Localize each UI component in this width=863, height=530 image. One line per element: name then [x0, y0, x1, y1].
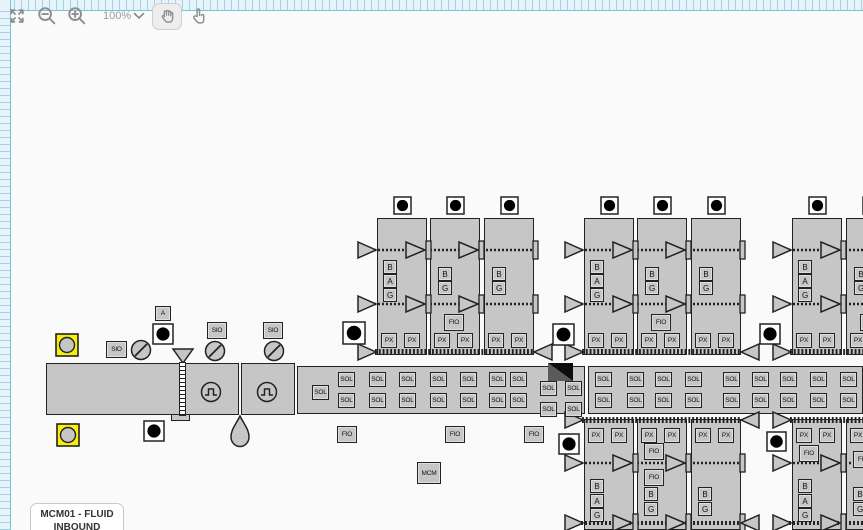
dashed-connector: [179, 362, 186, 416]
sol-box[interactable]: SOL: [510, 393, 527, 408]
pipe-flange: [426, 295, 431, 313]
sol-box[interactable]: SOL: [338, 393, 355, 408]
px-box[interactable]: PX: [588, 428, 604, 443]
valve-arrow-icon[interactable]: [773, 344, 791, 360]
pipe-flange: [479, 241, 484, 259]
sol-box[interactable]: SOL: [565, 381, 582, 396]
valve-arrow-icon[interactable]: [613, 515, 632, 530]
pipe-flange: [841, 295, 846, 313]
zoom-in-button[interactable]: [67, 6, 87, 26]
px-box[interactable]: PX: [434, 333, 450, 348]
letter-box-b[interactable]: B: [854, 267, 863, 281]
letter-box-b[interactable]: B: [798, 479, 812, 493]
valve-arrow-icon[interactable]: [613, 455, 632, 471]
pipe-flange: [686, 514, 691, 530]
valve-arrow-icon[interactable]: [821, 296, 840, 312]
valve-arrow-icon[interactable]: [459, 296, 478, 312]
pipe-flange: [633, 241, 638, 259]
px-box[interactable]: PX: [488, 333, 504, 348]
black-circle-indicator: [657, 200, 668, 211]
px-box[interactable]: PX: [695, 428, 711, 443]
sol-box[interactable]: SOL: [627, 372, 644, 387]
sol-box[interactable]: SOL: [840, 372, 857, 387]
sol-box[interactable]: SOL: [627, 393, 644, 408]
pipe-flange: [841, 514, 846, 530]
valve-arrow-icon[interactable]: [741, 412, 759, 428]
black-circle-indicator: [347, 326, 362, 341]
px-box[interactable]: PX: [641, 333, 657, 348]
magnifier-plus-icon: [67, 6, 87, 26]
sol-box[interactable]: SOL: [595, 372, 612, 387]
letter-box-b[interactable]: B: [853, 487, 863, 501]
pipe-flange: [633, 454, 638, 472]
sol-box[interactable]: SOL: [595, 393, 612, 408]
valve-arrow-icon[interactable]: [173, 349, 193, 363]
valve-arrow-icon[interactable]: [773, 296, 791, 312]
letter-box-a[interactable]: A: [798, 274, 812, 288]
sio-box[interactable]: SIO: [207, 322, 227, 339]
sol-box[interactable]: SOL: [685, 372, 702, 387]
letter-box-b[interactable]: B: [699, 267, 713, 281]
valve-arrow-icon[interactable]: [666, 515, 685, 530]
sol-box[interactable]: SOL: [489, 393, 506, 408]
fio-box[interactable]: FIO: [644, 469, 664, 486]
px-box[interactable]: PX: [664, 428, 680, 443]
px-box[interactable]: PX: [819, 428, 835, 443]
pipe-flange: [426, 241, 431, 259]
valve-arrow-icon[interactable]: [358, 242, 376, 258]
sol-box[interactable]: SOL: [338, 372, 355, 387]
px-box[interactable]: PX: [796, 333, 812, 348]
letter-box-a[interactable]: A: [798, 494, 812, 508]
fio-box[interactable]: FIO: [799, 445, 819, 462]
sio-box[interactable]: SIO: [263, 322, 283, 339]
letter-box-g[interactable]: G: [645, 281, 659, 295]
letter-box-g[interactable]: G: [590, 508, 604, 522]
px-box[interactable]: PX: [457, 333, 473, 348]
pointer-finger-icon: [189, 6, 206, 26]
black-circle-indicator: [711, 200, 722, 211]
sol-box[interactable]: SOL: [540, 402, 557, 417]
gray-circle: [61, 428, 76, 443]
sol-box[interactable]: SOL: [460, 372, 477, 387]
pipe-flange: [841, 454, 846, 472]
pipe-flange: [740, 241, 745, 259]
px-box[interactable]: PX: [511, 333, 527, 348]
px-box[interactable]: PX: [664, 333, 680, 348]
px-box[interactable]: PX: [381, 333, 397, 348]
px-box[interactable]: PX: [588, 333, 604, 348]
letter-box-b[interactable]: B: [590, 260, 604, 274]
magnifier-minus-icon: [37, 6, 57, 26]
sio-box[interactable]: SIO: [106, 341, 127, 358]
pipe-flange: [740, 454, 745, 472]
letter-box-g[interactable]: G: [383, 288, 397, 302]
px-box[interactable]: PX: [641, 428, 657, 443]
valve-arrow-icon[interactable]: [565, 296, 583, 312]
expand-arrows-icon: [8, 7, 26, 25]
sol-box[interactable]: SOL: [655, 393, 672, 408]
letter-box-g[interactable]: G: [853, 502, 863, 516]
sol-box[interactable]: SOL: [840, 393, 857, 408]
valve-arrow-icon[interactable]: [358, 296, 376, 312]
fio-box[interactable]: FIO: [524, 426, 544, 443]
pipe-flange: [533, 241, 538, 259]
sol-box[interactable]: SOL: [810, 372, 827, 387]
chevron-down-icon: [133, 12, 145, 20]
sol-box[interactable]: SOL: [369, 393, 386, 408]
sol-box[interactable]: SOL: [399, 372, 416, 387]
sol-box[interactable]: SOL: [430, 372, 447, 387]
sol-box[interactable]: SOL: [752, 372, 769, 387]
fio-box[interactable]: FIO: [644, 443, 664, 460]
letter-box-a[interactable]: A: [383, 274, 397, 288]
valve-arrow-icon[interactable]: [613, 296, 632, 312]
letter-box-b[interactable]: B: [645, 267, 659, 281]
sol-box[interactable]: SOL: [780, 372, 797, 387]
diagram-overlay: [0, 0, 863, 530]
letter-box-g[interactable]: G: [438, 281, 452, 295]
black-circle-indicator: [450, 200, 461, 211]
sol-box[interactable]: SOL: [430, 393, 447, 408]
sol-box[interactable]: SOL: [810, 393, 827, 408]
sol-box[interactable]: SOL: [655, 372, 672, 387]
valve-arrow-icon[interactable]: [666, 455, 685, 471]
black-circle-indicator: [604, 200, 615, 211]
valve-arrow-icon[interactable]: [821, 515, 840, 530]
letter-box-b[interactable]: B: [383, 260, 397, 274]
letter-box-g[interactable]: G: [590, 288, 604, 302]
diagram-title-label[interactable]: MCM01 - FLUID INBOUND: [30, 503, 124, 530]
black-circle-indicator: [763, 327, 776, 340]
sol-box[interactable]: SOL: [780, 393, 797, 408]
pulse-meter[interactable]: [202, 383, 221, 402]
valve-arrow-icon[interactable]: [459, 242, 478, 258]
fio-box[interactable]: FIO: [445, 426, 465, 443]
valve-arrow-icon[interactable]: [773, 412, 791, 428]
pipe-flange: [740, 295, 745, 313]
sol-box[interactable]: SOL: [540, 381, 557, 396]
pipe-flange: [633, 514, 638, 530]
black-circle-indicator: [147, 424, 160, 437]
valve-arrow-icon[interactable]: [821, 242, 840, 258]
px-box[interactable]: PX: [695, 333, 711, 348]
px-box[interactable]: PX: [819, 333, 835, 348]
letter-box-g[interactable]: G: [492, 281, 506, 295]
letter-box-a[interactable]: A: [155, 306, 171, 321]
letter-box-g[interactable]: G: [644, 502, 658, 516]
sol-box[interactable]: SOL: [399, 393, 416, 408]
gray-circle: [60, 338, 75, 353]
letter-box-b[interactable]: B: [798, 260, 812, 274]
valve-arrow-icon[interactable]: [406, 242, 425, 258]
ruler-vertical: [0, 0, 11, 530]
valve-arrow-icon[interactable]: [406, 296, 425, 312]
letter-box-b[interactable]: B: [590, 479, 604, 493]
fio-box[interactable]: FIO: [651, 314, 671, 331]
px-box[interactable]: PX: [850, 428, 863, 443]
px-box[interactable]: PX: [404, 333, 420, 348]
sol-box[interactable]: SOL: [510, 372, 527, 387]
px-box[interactable]: PX: [611, 428, 627, 443]
hand-icon: [159, 7, 175, 25]
pipe-flange: [686, 454, 691, 472]
black-circle-indicator: [397, 200, 408, 211]
pipe-flange: [841, 241, 846, 259]
px-box[interactable]: PX: [718, 428, 734, 443]
black-circle-indicator: [770, 435, 783, 448]
sol-box[interactable]: SOL: [723, 393, 740, 408]
px-box[interactable]: PX: [718, 333, 734, 348]
valve-arrow-icon[interactable]: [773, 242, 791, 258]
black-circle-indicator: [812, 200, 823, 211]
black-circle-indicator: [562, 437, 575, 450]
letter-box-g[interactable]: G: [699, 281, 713, 295]
mcm-box[interactable]: MCM: [417, 462, 441, 484]
pipe-flange: [633, 295, 638, 313]
px-box[interactable]: PX: [850, 333, 863, 348]
select-tool-button[interactable]: [189, 6, 206, 26]
px-box[interactable]: PX: [611, 333, 627, 348]
valve-arrow-icon[interactable]: [565, 344, 583, 360]
valve-arrow-icon[interactable]: [565, 455, 583, 471]
sol-box[interactable]: SOL: [685, 393, 702, 408]
black-circle-indicator: [504, 200, 515, 211]
letter-box-g[interactable]: G: [698, 502, 712, 516]
fit-to-screen-button[interactable]: [8, 7, 26, 25]
letter-box-b[interactable]: B: [644, 487, 658, 501]
sol-box[interactable]: SOL: [489, 372, 506, 387]
sol-box[interactable]: SOL: [460, 393, 477, 408]
diagram-canvas[interactable]: 100% MCM01 - FLUID INBOUND SOLSOLSOLSOLS…: [0, 0, 863, 530]
valve-arrow-icon[interactable]: [666, 296, 685, 312]
valve-arrow-icon[interactable]: [358, 344, 376, 360]
letter-box-a[interactable]: A: [590, 274, 604, 288]
pan-tool-button[interactable]: [152, 3, 182, 30]
sol-box[interactable]: SOL: [565, 402, 582, 417]
px-box[interactable]: PX: [796, 428, 812, 443]
letter-box-b[interactable]: B: [492, 267, 506, 281]
fio-box[interactable]: FIO: [853, 451, 863, 468]
letter-box-b[interactable]: B: [698, 487, 712, 501]
fio-box[interactable]: FIO: [337, 426, 357, 443]
sol-box[interactable]: SOL: [369, 372, 386, 387]
drain-drop[interactable]: [231, 416, 249, 447]
zoom-out-button[interactable]: [37, 6, 57, 26]
letter-box-g[interactable]: G: [798, 288, 812, 302]
letter-box-b[interactable]: B: [438, 267, 452, 281]
pipe-flange: [533, 295, 538, 313]
valve-arrow-icon[interactable]: [666, 242, 685, 258]
valve-arrow-icon[interactable]: [773, 515, 791, 530]
letter-box-a[interactable]: A: [590, 494, 604, 508]
black-circle-indicator: [156, 327, 169, 340]
valve-arrow-icon[interactable]: [565, 515, 583, 530]
letter-box-g[interactable]: G: [798, 508, 812, 522]
black-circle-indicator: [557, 328, 571, 342]
sol-box[interactable]: SOL: [312, 385, 329, 400]
pulse-meter[interactable]: [258, 383, 277, 402]
valve-arrow-icon[interactable]: [565, 242, 583, 258]
pipe-flange: [686, 241, 691, 259]
zoom-level-value: 100%: [103, 10, 131, 22]
valve-arrow-icon[interactable]: [741, 344, 759, 360]
letter-box-g[interactable]: G: [854, 281, 863, 295]
valve-arrow-icon[interactable]: [773, 455, 791, 471]
sol-box[interactable]: SOL: [752, 393, 769, 408]
valve-arrow-icon[interactable]: [613, 242, 632, 258]
valve-arrow-icon[interactable]: [534, 344, 552, 360]
pipe-flange: [479, 295, 484, 313]
pipe-flange: [686, 295, 691, 313]
canvas-toolbar: 100%: [5, 3, 209, 29]
sol-box[interactable]: SOL: [723, 372, 740, 387]
valve-arrow-icon[interactable]: [821, 455, 840, 471]
zoom-level-select[interactable]: 100%: [93, 10, 145, 22]
fio-box[interactable]: FIO: [444, 314, 464, 331]
